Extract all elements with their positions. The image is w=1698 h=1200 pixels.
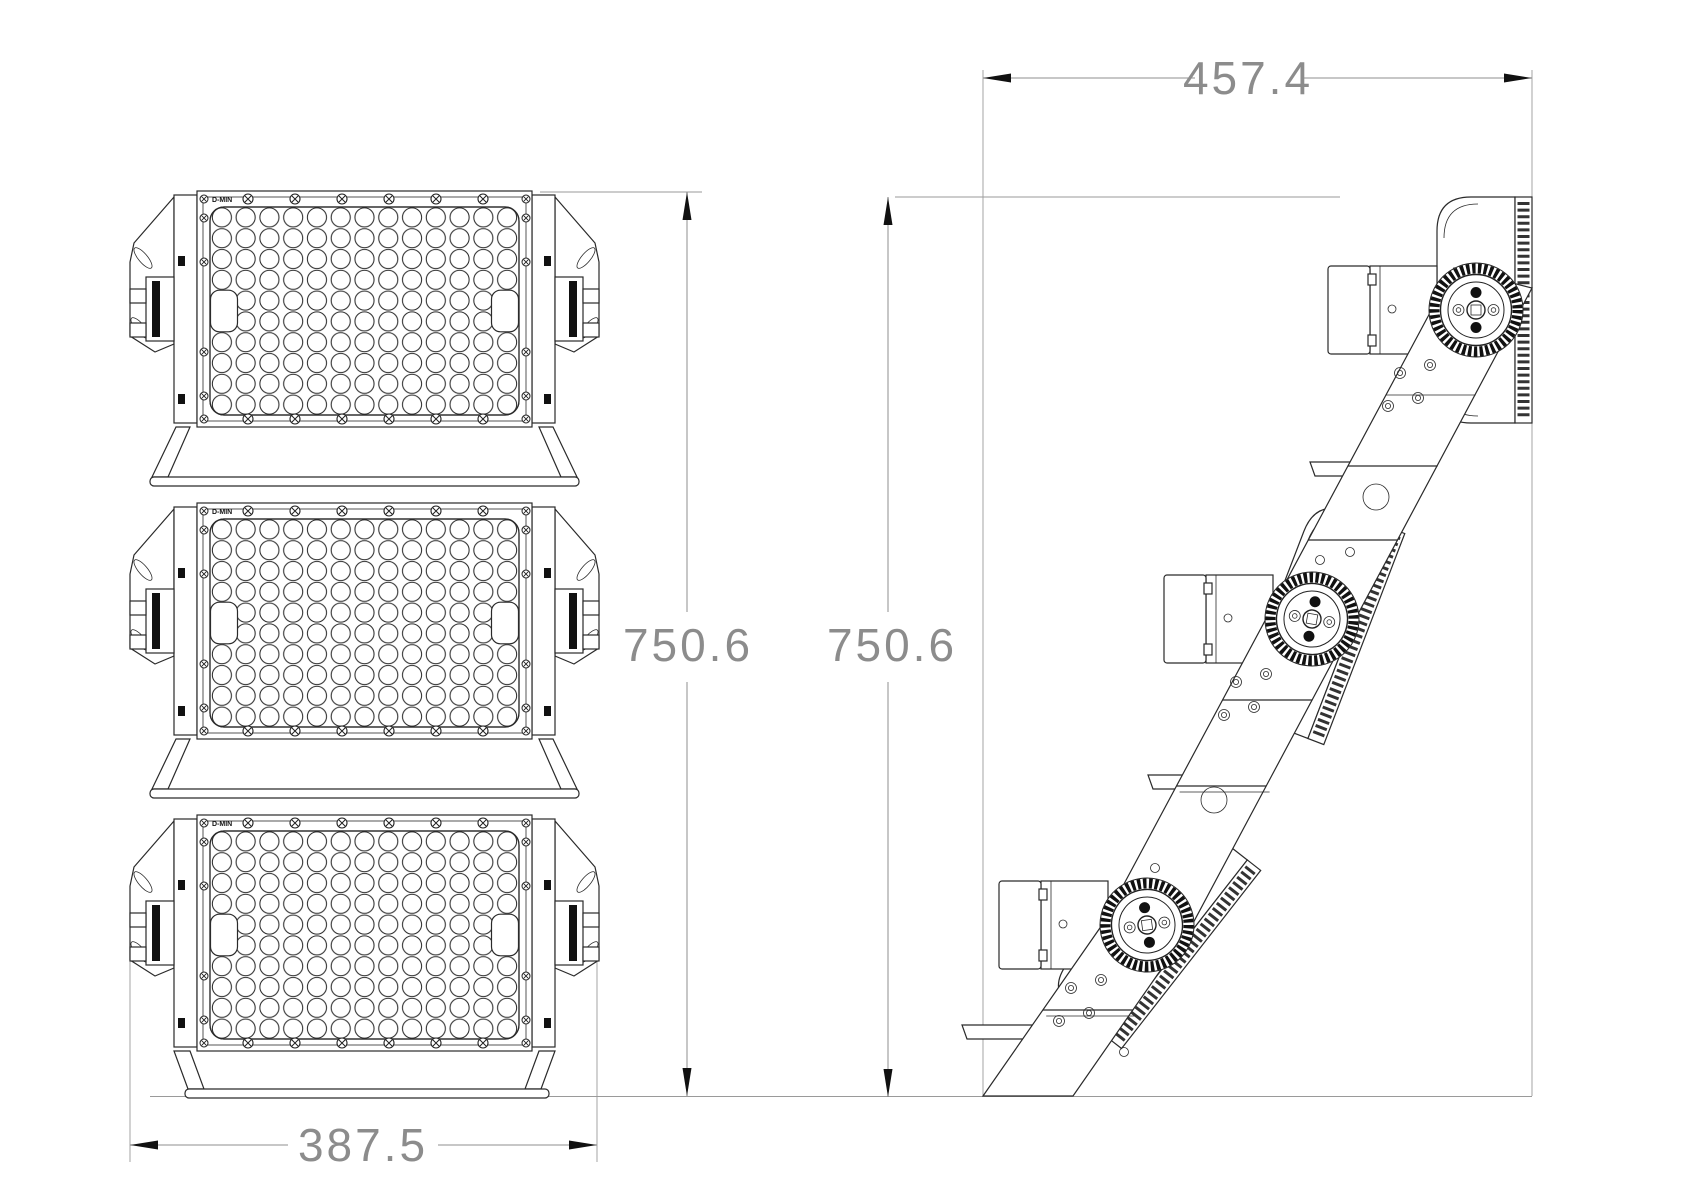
aiming-gear-top bbox=[1429, 263, 1523, 357]
dim-label-side-height: 750.6 bbox=[827, 619, 957, 671]
front-module-3 bbox=[128, 815, 601, 1051]
dimension-front-width: 387.5 bbox=[130, 1119, 597, 1171]
drawing-svg: 457.4 750.6 750.6 387.5 bbox=[0, 0, 1698, 1200]
dim-label-front-height: 750.6 bbox=[623, 619, 753, 671]
module-brand-label: D-MIN bbox=[212, 509, 232, 516]
front-module-1 bbox=[128, 191, 601, 427]
dim-label-side-width: 457.4 bbox=[1183, 52, 1313, 104]
dimension-front-height: 750.6 bbox=[623, 192, 753, 1096]
technical-drawing-sheet: 457.4 750.6 750.6 387.5 bbox=[0, 0, 1698, 1200]
dimension-side-height: 750.6 bbox=[827, 197, 957, 1097]
dimension-side-width: 457.4 bbox=[983, 52, 1532, 104]
side-view bbox=[962, 197, 1532, 1096]
front-view: D-MIN D-MIN D-MIN bbox=[128, 191, 601, 1098]
module-brand-label: D-MIN bbox=[212, 197, 232, 204]
module-brand-label: D-MIN bbox=[212, 821, 232, 828]
dim-label-front-width: 387.5 bbox=[298, 1119, 428, 1171]
front-module-2 bbox=[128, 503, 601, 739]
